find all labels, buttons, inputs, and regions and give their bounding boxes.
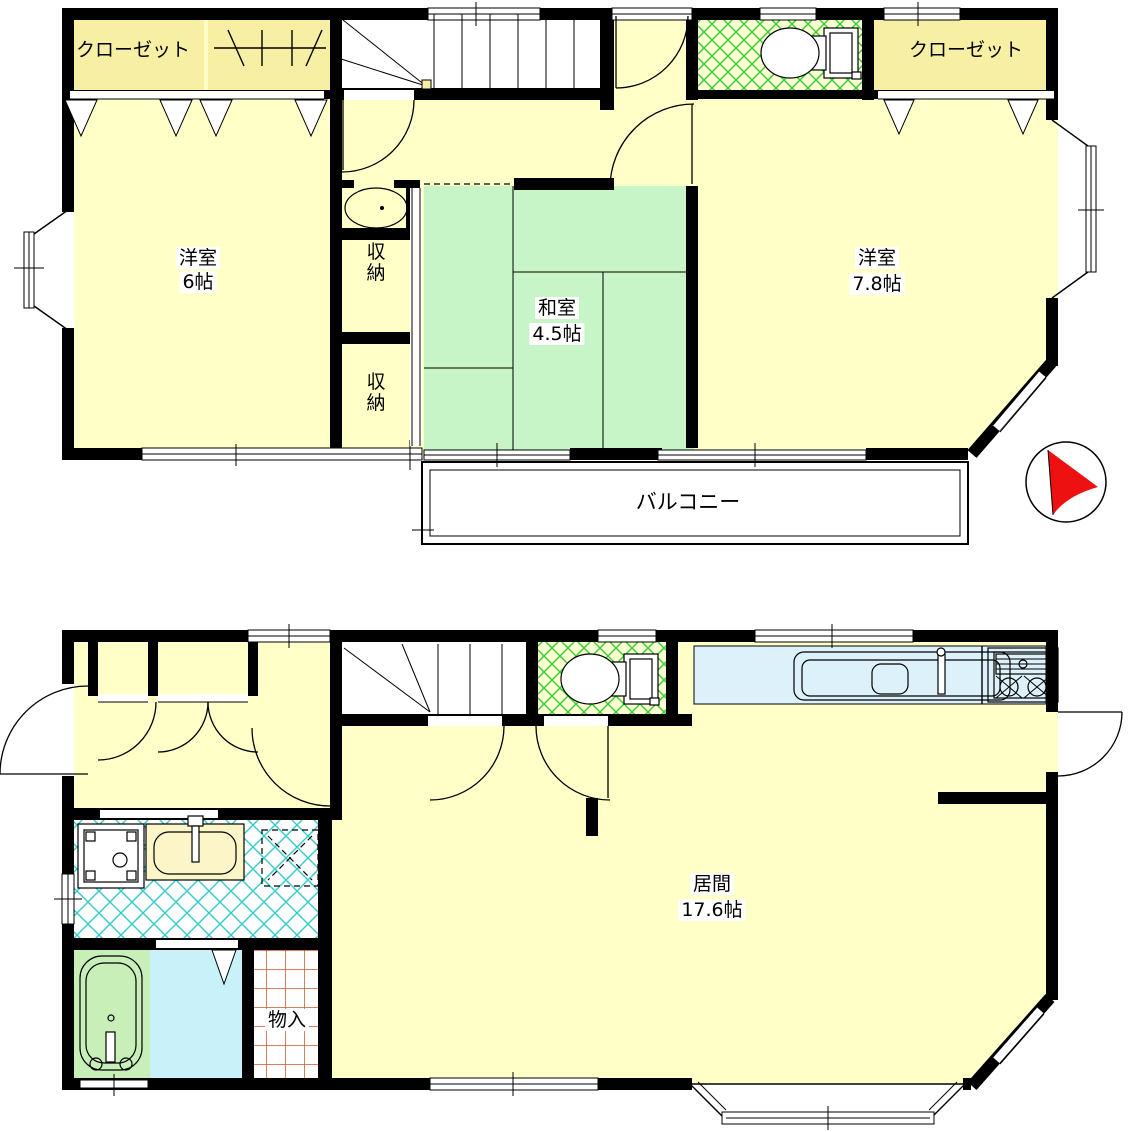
tatami-room — [424, 186, 694, 454]
bathroom-door-opening — [156, 940, 238, 948]
vanity-sink-icon-1f — [146, 816, 244, 880]
bay-opening-2f-west — [62, 212, 74, 328]
label-tatami-size: 4.5帖 — [529, 323, 584, 345]
compass-icon — [1026, 442, 1106, 522]
label-closet-2f-right: クローゼット — [909, 40, 1023, 62]
label-living-size: 17.6帖 — [678, 899, 745, 921]
storage-sliding-front — [410, 188, 422, 446]
floorplan-canvas: クローゼット クローゼット 洋室 6帖 収納 収納 和室 4.5帖 洋室 7.8… — [0, 0, 1132, 1132]
stairs-1f-area — [342, 642, 526, 714]
bay-window-2f-west — [14, 210, 68, 330]
label-room-west-name: 洋室 — [176, 247, 220, 269]
floor-2f — [14, 2, 1106, 544]
genkan-closet-fronts — [98, 694, 248, 702]
label-tatami-name: 和室 — [535, 297, 579, 319]
label-closet-2f-left: クローゼット — [76, 40, 190, 62]
toilet-icon-1f — [561, 654, 659, 705]
label-room-west-size: 6帖 — [179, 271, 216, 293]
toilet-door-opening-1f — [544, 716, 608, 726]
stair-door-opening-1f — [428, 716, 502, 726]
bay-window-1f-south — [690, 1082, 965, 1130]
label-room-east-size: 7.8帖 — [849, 273, 904, 295]
stairs-2f-area — [336, 14, 600, 90]
washing-machine-icon — [78, 824, 144, 888]
entrance-opening — [62, 684, 74, 776]
label-balcony: バルコニー — [636, 490, 741, 514]
bay-window-2f-east — [1052, 120, 1104, 298]
stair-door-opening-2f — [344, 90, 414, 100]
kitchen-counter — [694, 646, 1046, 704]
floorplan-drawing — [0, 0, 1132, 1132]
floor-1f — [0, 624, 1122, 1130]
kitchen-exterior-door-arc — [1058, 712, 1122, 776]
label-living-name: 居間 — [690, 873, 734, 895]
label-storage2: 収納 — [364, 372, 388, 414]
label-room-east-name: 洋室 — [855, 247, 899, 269]
label-storage-1f: 物入 — [265, 1009, 309, 1031]
label-storage1: 収納 — [364, 242, 388, 284]
